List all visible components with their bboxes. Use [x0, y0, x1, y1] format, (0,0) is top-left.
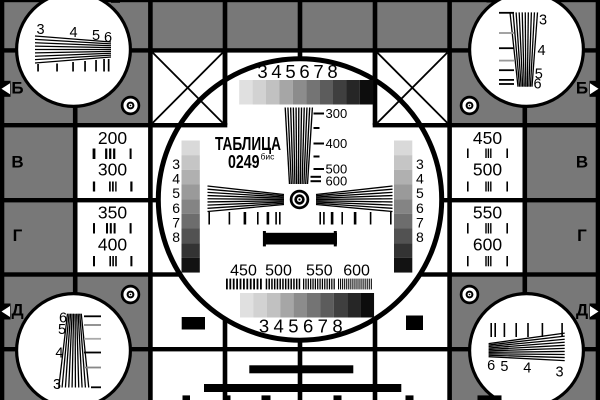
svg-text:Д: Д [11, 301, 23, 320]
svg-text:0249: 0249 [228, 152, 260, 172]
svg-text:5: 5 [92, 28, 100, 44]
svg-text:8: 8 [416, 229, 424, 245]
svg-text:4: 4 [523, 360, 531, 376]
svg-text:8: 8 [172, 229, 180, 245]
svg-text:450: 450 [473, 128, 502, 148]
svg-text:6: 6 [104, 30, 112, 46]
svg-text:3: 3 [36, 22, 44, 38]
svg-text:6: 6 [303, 315, 313, 336]
svg-text:3: 3 [539, 13, 547, 29]
svg-text:6: 6 [299, 61, 309, 82]
svg-text:6: 6 [172, 200, 180, 216]
svg-text:Г: Г [577, 226, 587, 245]
svg-text:5: 5 [500, 359, 508, 375]
svg-text:5: 5 [58, 322, 66, 338]
svg-text:8: 8 [332, 315, 342, 336]
svg-text:4: 4 [55, 346, 63, 362]
svg-text:7: 7 [318, 315, 328, 336]
svg-text:550: 550 [306, 262, 333, 279]
svg-text:600: 600 [326, 174, 348, 189]
svg-text:400: 400 [98, 234, 127, 254]
svg-text:Д: Д [576, 301, 588, 320]
svg-text:200: 200 [98, 128, 127, 148]
svg-text:4: 4 [69, 25, 77, 41]
svg-text:7: 7 [313, 61, 323, 82]
svg-text:4: 4 [538, 43, 546, 59]
svg-text:4: 4 [274, 315, 284, 336]
svg-text:350: 350 [98, 203, 127, 223]
svg-text:300: 300 [326, 106, 348, 121]
svg-text:400: 400 [326, 136, 348, 151]
svg-text:550: 550 [473, 203, 502, 223]
svg-text:6: 6 [416, 200, 424, 216]
svg-text:5: 5 [285, 61, 295, 82]
svg-text:5: 5 [288, 315, 298, 336]
svg-text:8: 8 [327, 61, 337, 82]
svg-text:В: В [11, 153, 23, 172]
svg-text:Б: Б [11, 79, 23, 98]
svg-text:500: 500 [265, 262, 292, 279]
svg-text:Г: Г [13, 226, 23, 245]
svg-text:5: 5 [416, 185, 424, 201]
svg-text:В: В [576, 153, 588, 172]
svg-text:300: 300 [98, 160, 127, 180]
svg-text:600: 600 [343, 262, 370, 279]
svg-text:Б: Б [576, 79, 588, 98]
svg-text:3: 3 [555, 364, 563, 380]
svg-text:3: 3 [172, 156, 180, 172]
svg-text:3: 3 [53, 377, 61, 393]
svg-text:450: 450 [230, 262, 257, 279]
svg-text:600: 600 [473, 234, 502, 254]
svg-text:6: 6 [533, 76, 541, 92]
svg-text:3: 3 [259, 315, 269, 336]
svg-text:7: 7 [416, 215, 424, 231]
svg-text:7: 7 [172, 215, 180, 231]
svg-text:6: 6 [487, 358, 495, 374]
svg-text:3: 3 [257, 61, 267, 82]
svg-text:5: 5 [172, 185, 180, 201]
svg-text:4: 4 [271, 61, 281, 82]
svg-text:500: 500 [473, 160, 502, 180]
svg-text:4: 4 [172, 171, 180, 187]
svg-text:3: 3 [416, 156, 424, 172]
svg-text:4: 4 [416, 171, 424, 187]
svg-text:бис: бис [261, 152, 276, 162]
